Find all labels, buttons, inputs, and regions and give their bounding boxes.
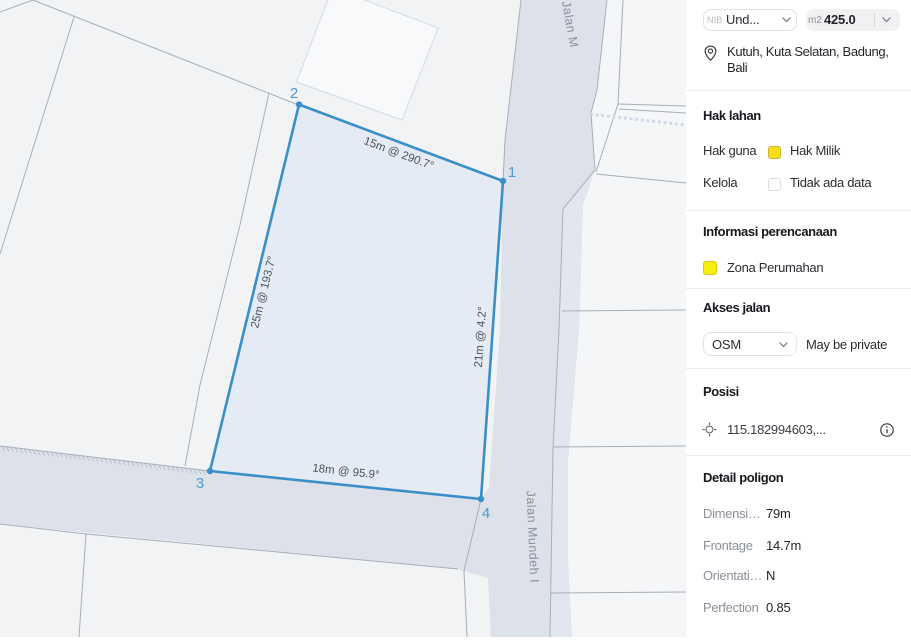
svg-text:1: 1 (508, 164, 516, 181)
svg-text:3: 3 (196, 475, 204, 492)
svg-text:4: 4 (482, 505, 490, 522)
svg-text:2: 2 (290, 85, 298, 102)
